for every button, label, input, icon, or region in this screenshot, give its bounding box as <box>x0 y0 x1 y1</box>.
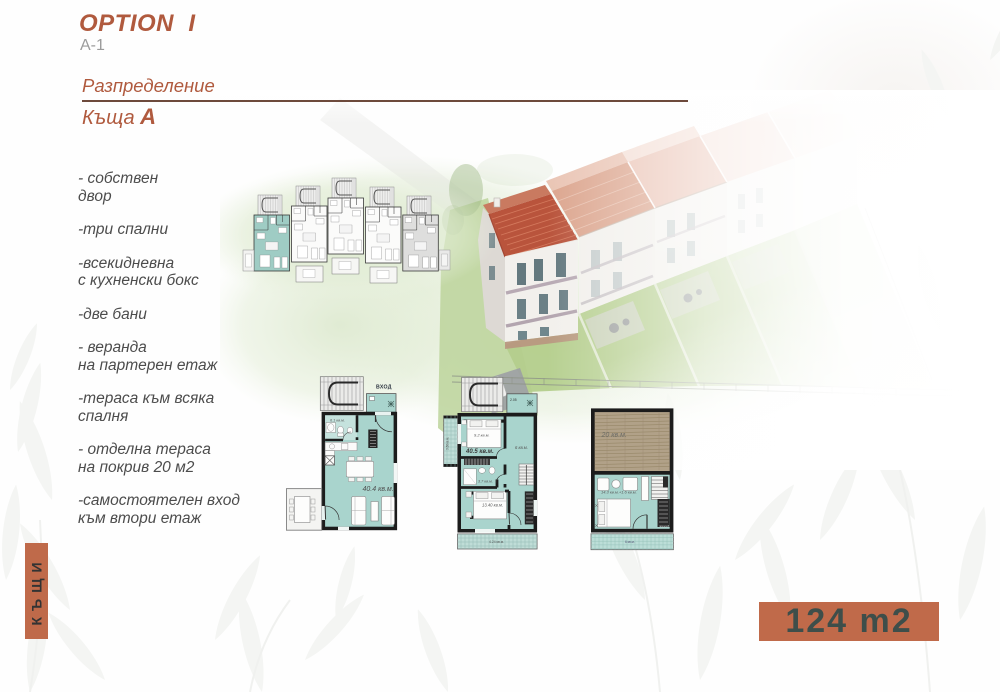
svg-text:2.05: 2.05 <box>510 398 517 402</box>
svg-text:9.2 кв.м.: 9.2 кв.м. <box>474 433 490 438</box>
svg-text:6 кв.м.: 6 кв.м. <box>515 445 528 450</box>
svg-text:ВХОД: ВХОД <box>376 385 392 391</box>
svg-text:40.5 кв.м.: 40.5 кв.м. <box>465 449 494 455</box>
svg-text:3.7 кв.м.: 3.7 кв.м. <box>478 480 493 484</box>
svg-text:3.60кв.м.: 3.60кв.м. <box>446 437 450 450</box>
svg-text:6 кв.м.: 6 кв.м. <box>625 540 635 544</box>
svg-text:гардероб: гардероб <box>659 525 670 528</box>
svg-text:4.24 кв.м.: 4.24 кв.м. <box>489 540 504 544</box>
svg-text:20 кв.м.: 20 кв.м. <box>601 432 627 439</box>
svg-text:6.1 кв.м.: 6.1 кв.м. <box>330 419 345 423</box>
svg-text:40.4 кв.м.: 40.4 кв.м. <box>363 486 394 493</box>
svg-text:14.3 кв.м.+1.6 кв.м.: 14.3 кв.м.+1.6 кв.м. <box>601 490 637 495</box>
svg-text:13.40 кв.м.: 13.40 кв.м. <box>482 503 503 508</box>
